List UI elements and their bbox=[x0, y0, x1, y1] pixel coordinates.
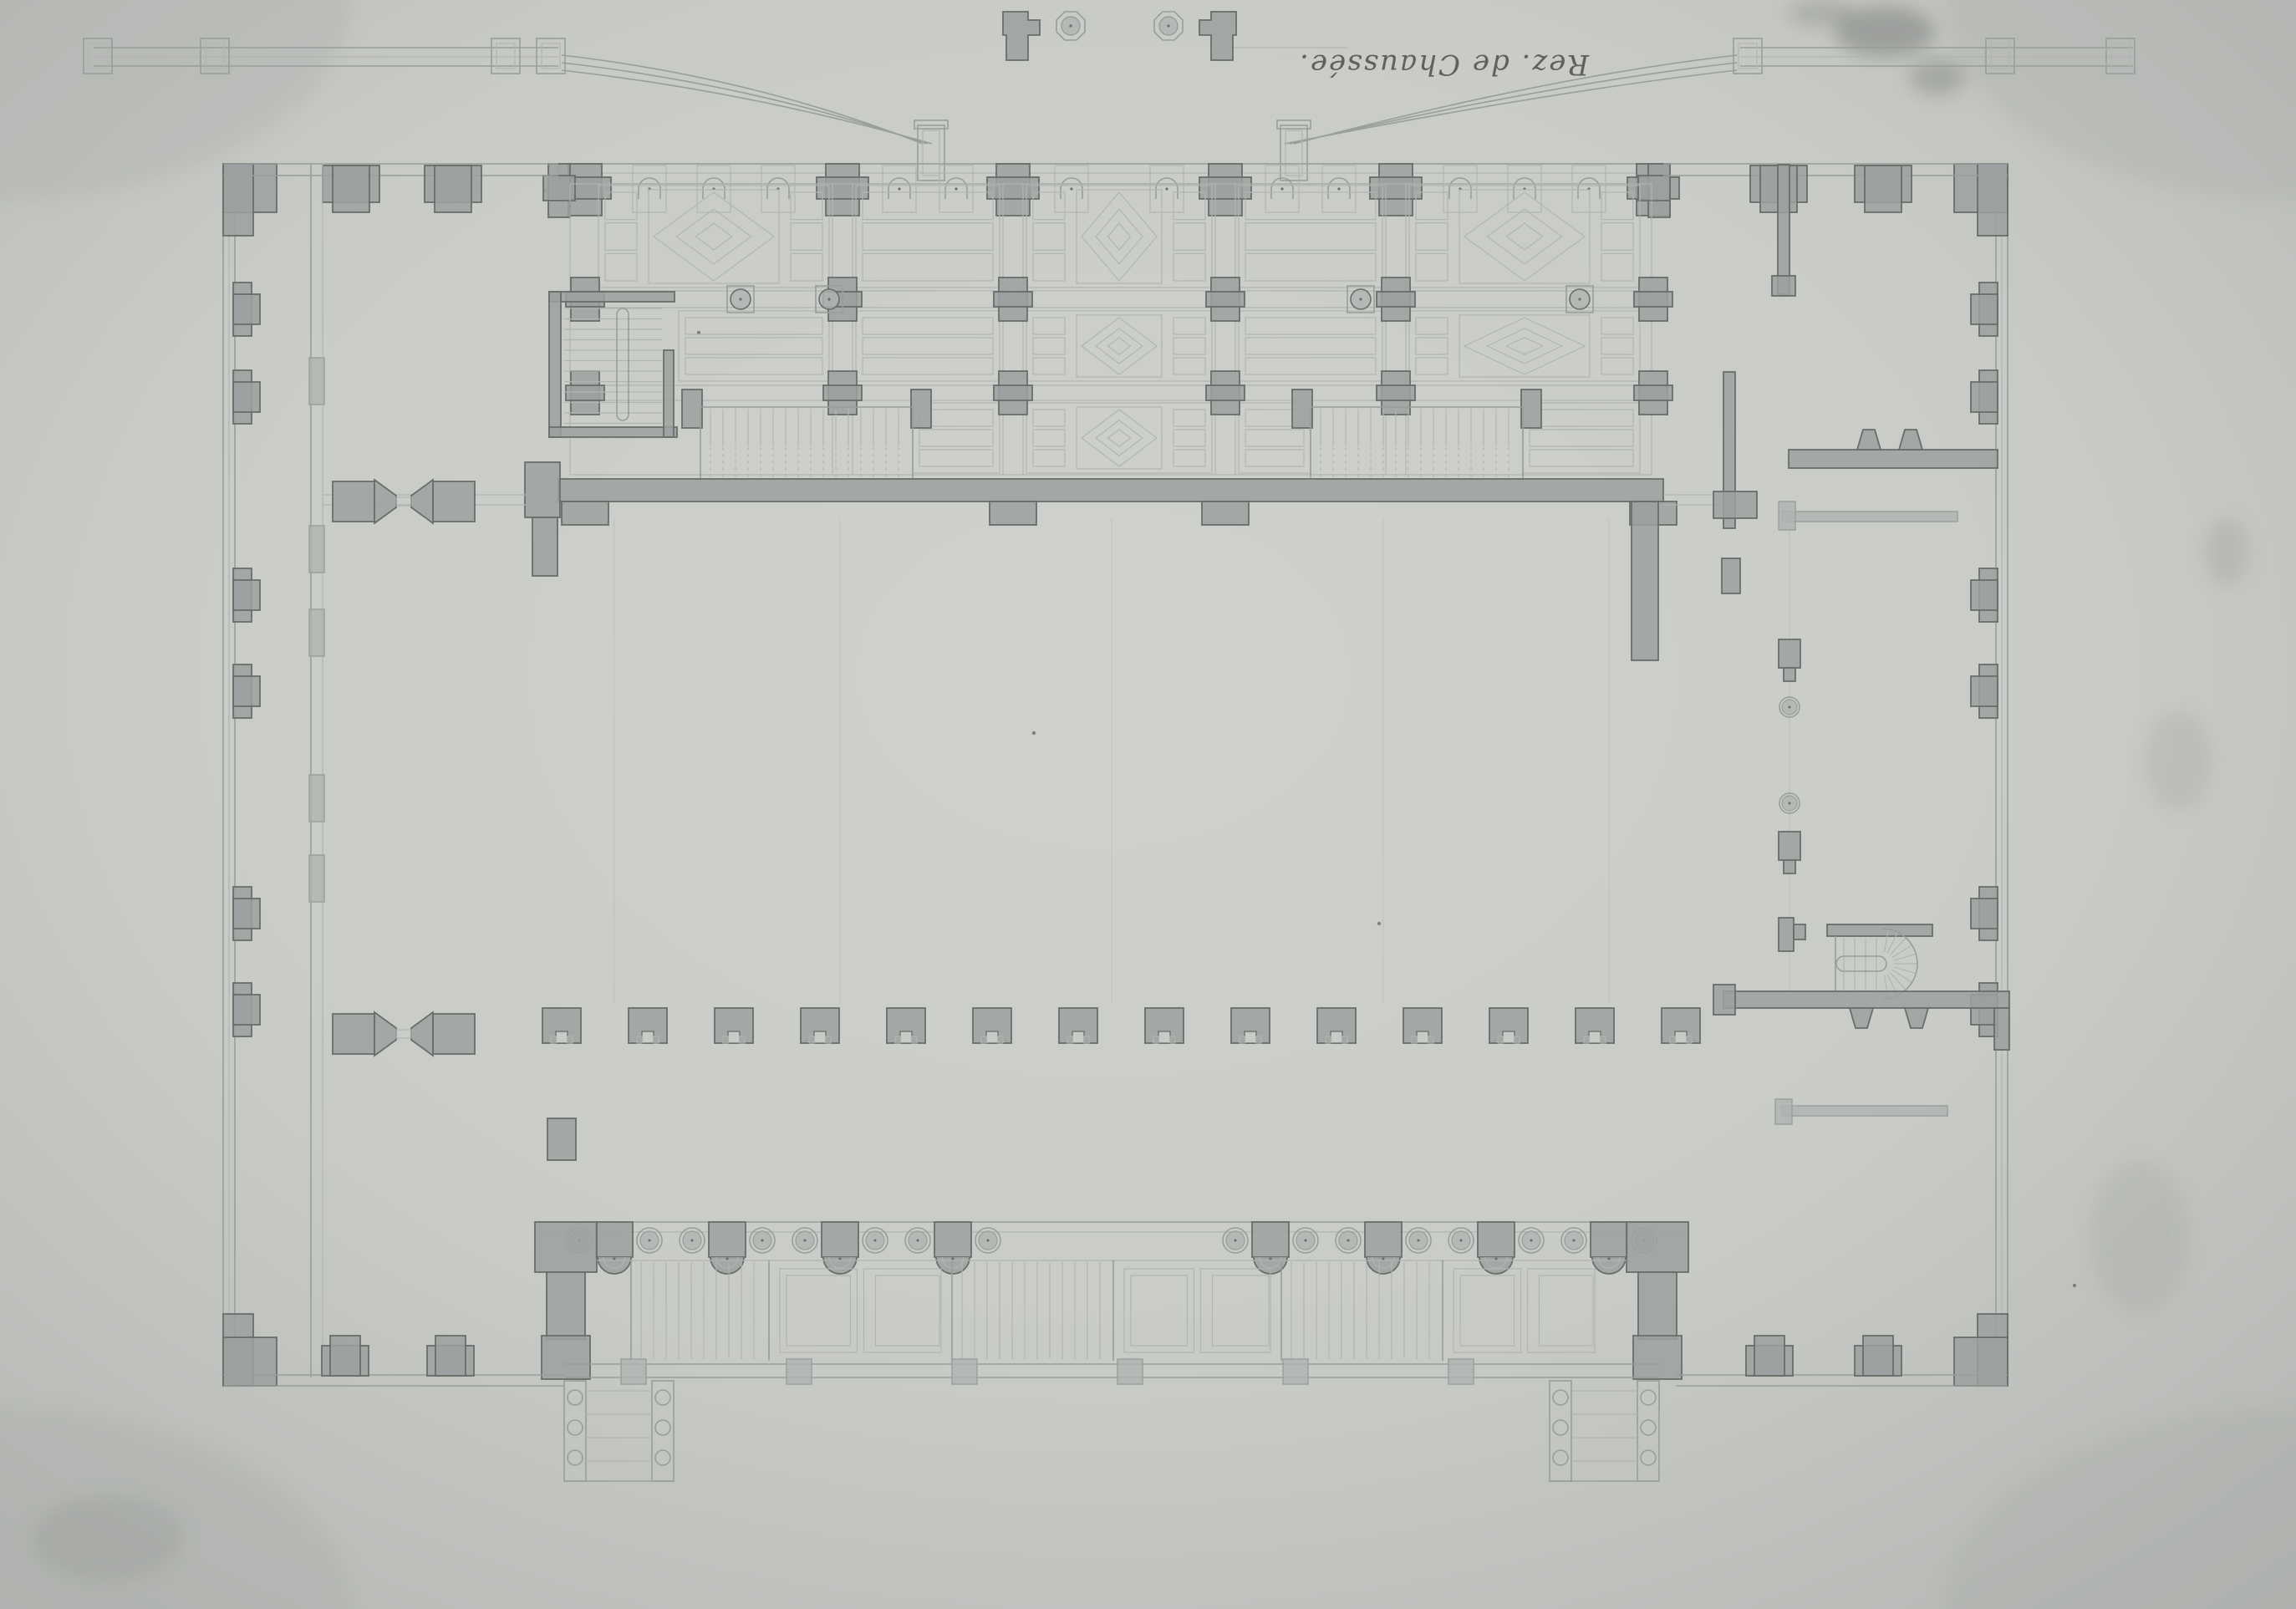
balustrade-post bbox=[1283, 1359, 1308, 1384]
thin-wall bbox=[1782, 512, 1957, 522]
gallery-pier bbox=[309, 775, 324, 822]
gallery-pier bbox=[309, 609, 324, 656]
partition-wall bbox=[1778, 165, 1789, 294]
south-pilaster bbox=[562, 502, 608, 525]
stain bbox=[33, 1496, 184, 1580]
gallery-pier bbox=[309, 855, 324, 902]
stain bbox=[2205, 518, 2248, 585]
south-pilaster bbox=[1202, 502, 1249, 525]
se-wall-stub bbox=[1632, 502, 1658, 660]
stain bbox=[2090, 1162, 2190, 1312]
balustrade-post bbox=[952, 1359, 977, 1384]
floor-plan-drawing: Rez. de Chaussée. bbox=[0, 0, 2296, 1609]
south-wall bbox=[558, 479, 1663, 502]
stain bbox=[2145, 710, 2212, 811]
sw-wall-stub bbox=[532, 517, 557, 576]
fireplace-wall bbox=[1789, 450, 1998, 468]
wall-bracket bbox=[1722, 558, 1740, 593]
balustrade-post bbox=[1448, 1359, 1474, 1384]
south-pilaster bbox=[990, 502, 1036, 525]
gallery-pier bbox=[309, 526, 324, 573]
wall-bracket bbox=[1713, 491, 1757, 518]
square-pier bbox=[1779, 832, 1800, 860]
balustrade-post bbox=[1117, 1359, 1143, 1384]
stain bbox=[1789, 0, 1856, 27]
fireplace-wall bbox=[1723, 991, 2009, 1008]
plan-sheet: Rez. de Chaussée. bbox=[0, 0, 2296, 1609]
gallery-pier bbox=[309, 358, 324, 405]
square-pier bbox=[1779, 639, 1800, 668]
balustrade-post bbox=[621, 1359, 646, 1384]
sw-junction-pier bbox=[525, 462, 560, 517]
annotation: Rez. de Chaussée. bbox=[1298, 48, 1590, 81]
balustrade-post bbox=[787, 1359, 812, 1384]
stain bbox=[1909, 59, 1966, 95]
isolated-pier bbox=[547, 1118, 576, 1160]
wall-bracket bbox=[1779, 918, 1794, 951]
thin-wall bbox=[1782, 1106, 1947, 1116]
floor-label: Rez. de Chaussée. bbox=[1298, 48, 1590, 81]
